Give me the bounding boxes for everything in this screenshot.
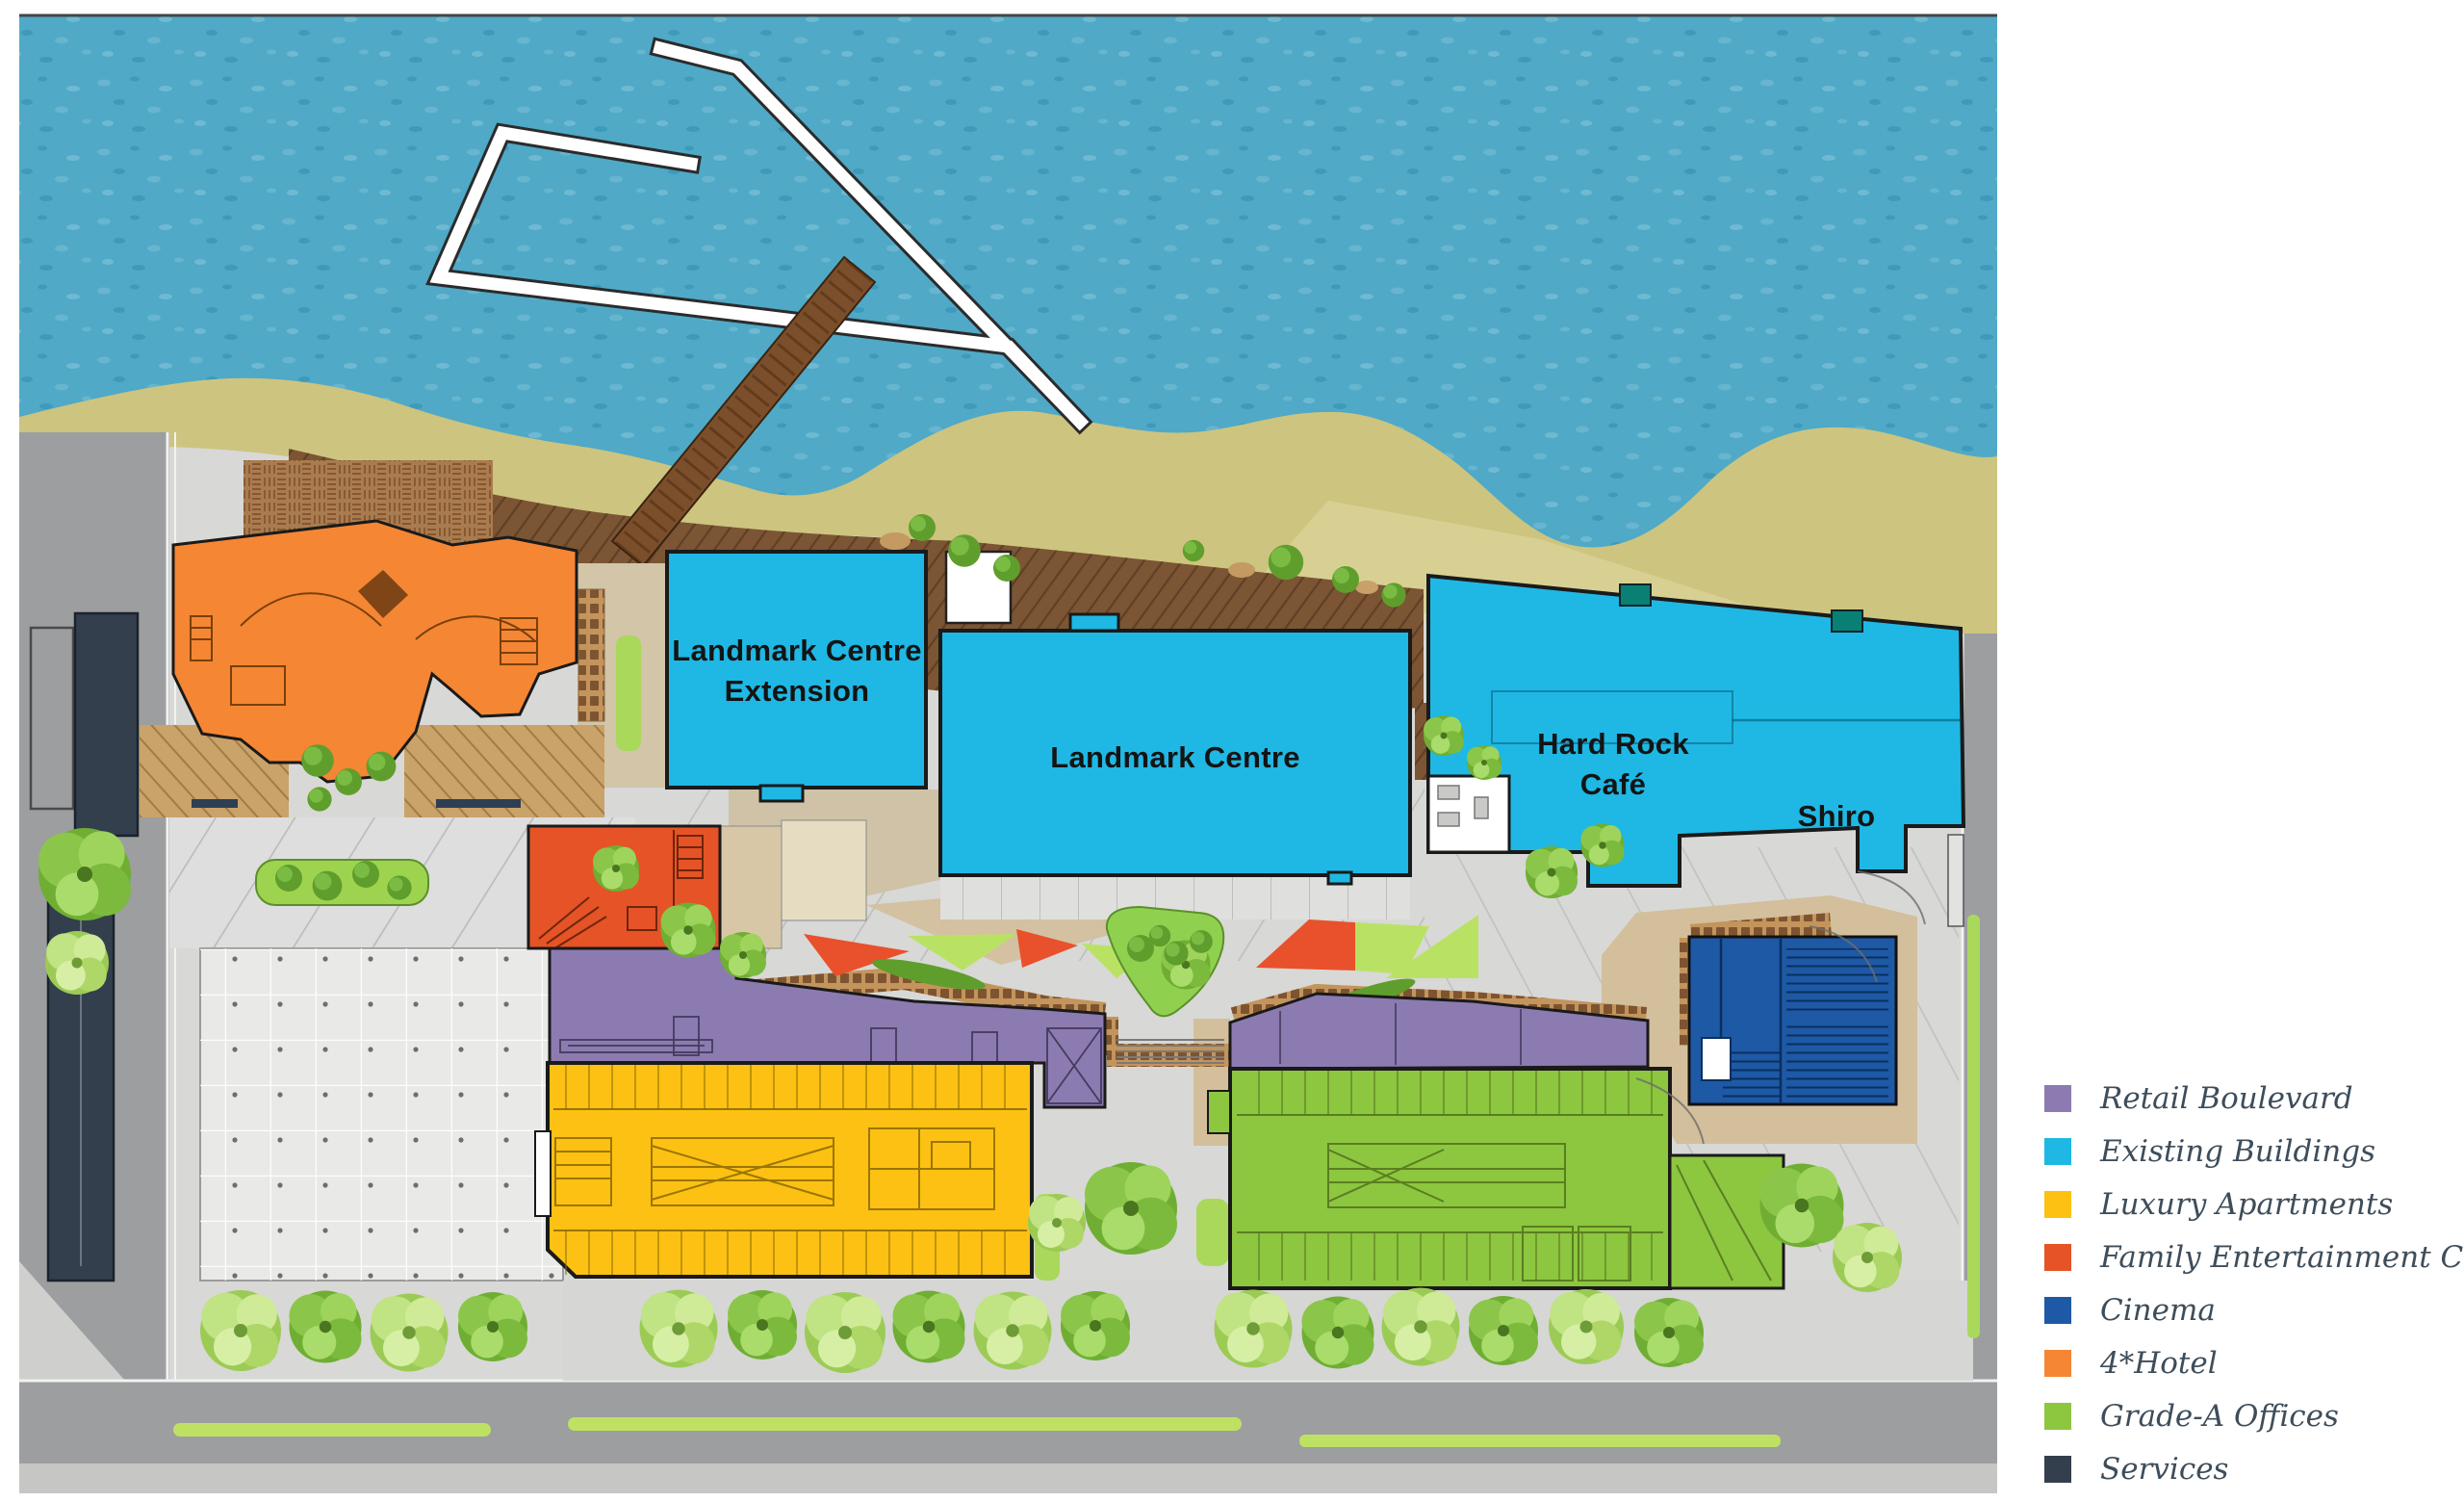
bench — [192, 799, 238, 808]
court-lawn-strip — [616, 635, 641, 751]
hotel-ramp — [578, 589, 604, 721]
label-landmark-centre: Landmark Centre — [1050, 738, 1299, 778]
legend-label: 4*Hotel — [2100, 1349, 2218, 1379]
legend-label: Services — [2100, 1455, 2228, 1485]
legend-label: Luxury Apartments — [2100, 1190, 2393, 1220]
luxury-apartments-building — [535, 1063, 1032, 1277]
legend-swatch — [2044, 1297, 2071, 1324]
fec-court — [782, 820, 866, 920]
legend-item-existing-buildings: Existing Buildings — [2044, 1138, 2464, 1165]
legend-swatch — [2044, 1191, 2071, 1218]
apartments-entry — [535, 1131, 551, 1216]
roadside-lawn — [1967, 915, 1980, 1338]
roof-vent — [1620, 584, 1651, 606]
masterplan-page: Landmark Centre Extension Landmark Centr… — [0, 0, 2464, 1502]
legend: Retail Boulevard Existing Buildings Luxu… — [2044, 1085, 2464, 1502]
event-plaza — [200, 948, 563, 1281]
legend-item-family-entertainment-centre: Family Entertainment Centre — [2044, 1244, 2464, 1271]
legend-swatch — [2044, 1403, 2071, 1430]
legend-item-luxury-apartments: Luxury Apartments — [2044, 1191, 2464, 1218]
legend-item-4-star-hotel: 4*Hotel — [2044, 1350, 2464, 1377]
cinema-stair — [1702, 1038, 1731, 1080]
bench — [436, 799, 521, 808]
legend-item-retail-boulevard: Retail Boulevard — [2044, 1085, 2464, 1112]
legend-label: Cinema — [2100, 1296, 2216, 1326]
legend-item-services: Services — [2044, 1456, 2464, 1483]
legend-label: Family Entertainment Centre — [2100, 1243, 2464, 1273]
bottom-sidewalk — [19, 1463, 1997, 1493]
cinema-building — [1689, 937, 1896, 1104]
legend-swatch — [2044, 1350, 2071, 1377]
legend-label: Existing Buildings — [2100, 1137, 2375, 1167]
legend-swatch — [2044, 1456, 2071, 1483]
legend-label: Grade-A Offices — [2100, 1402, 2339, 1432]
legend-swatch — [2044, 1085, 2071, 1112]
label-shiro: Shiro — [1798, 796, 1876, 837]
roof-vent — [1832, 610, 1862, 632]
legend-swatch — [2044, 1244, 2071, 1271]
legend-swatch — [2044, 1138, 2071, 1165]
services-building-north — [75, 613, 138, 836]
label-landmark-centre-extension: Landmark Centre Extension — [672, 631, 921, 712]
road-stair — [1948, 835, 1963, 926]
lawn-strip — [1196, 1199, 1229, 1266]
legend-item-cinema: Cinema — [2044, 1297, 2464, 1324]
fec-side-deck — [720, 826, 782, 948]
legend-item-grade-a-offices: Grade-A Offices — [2044, 1403, 2464, 1430]
label-hard-rock-cafe: Hard Rock Café — [1537, 724, 1689, 805]
legend-label: Retail Boulevard — [2100, 1084, 2353, 1114]
